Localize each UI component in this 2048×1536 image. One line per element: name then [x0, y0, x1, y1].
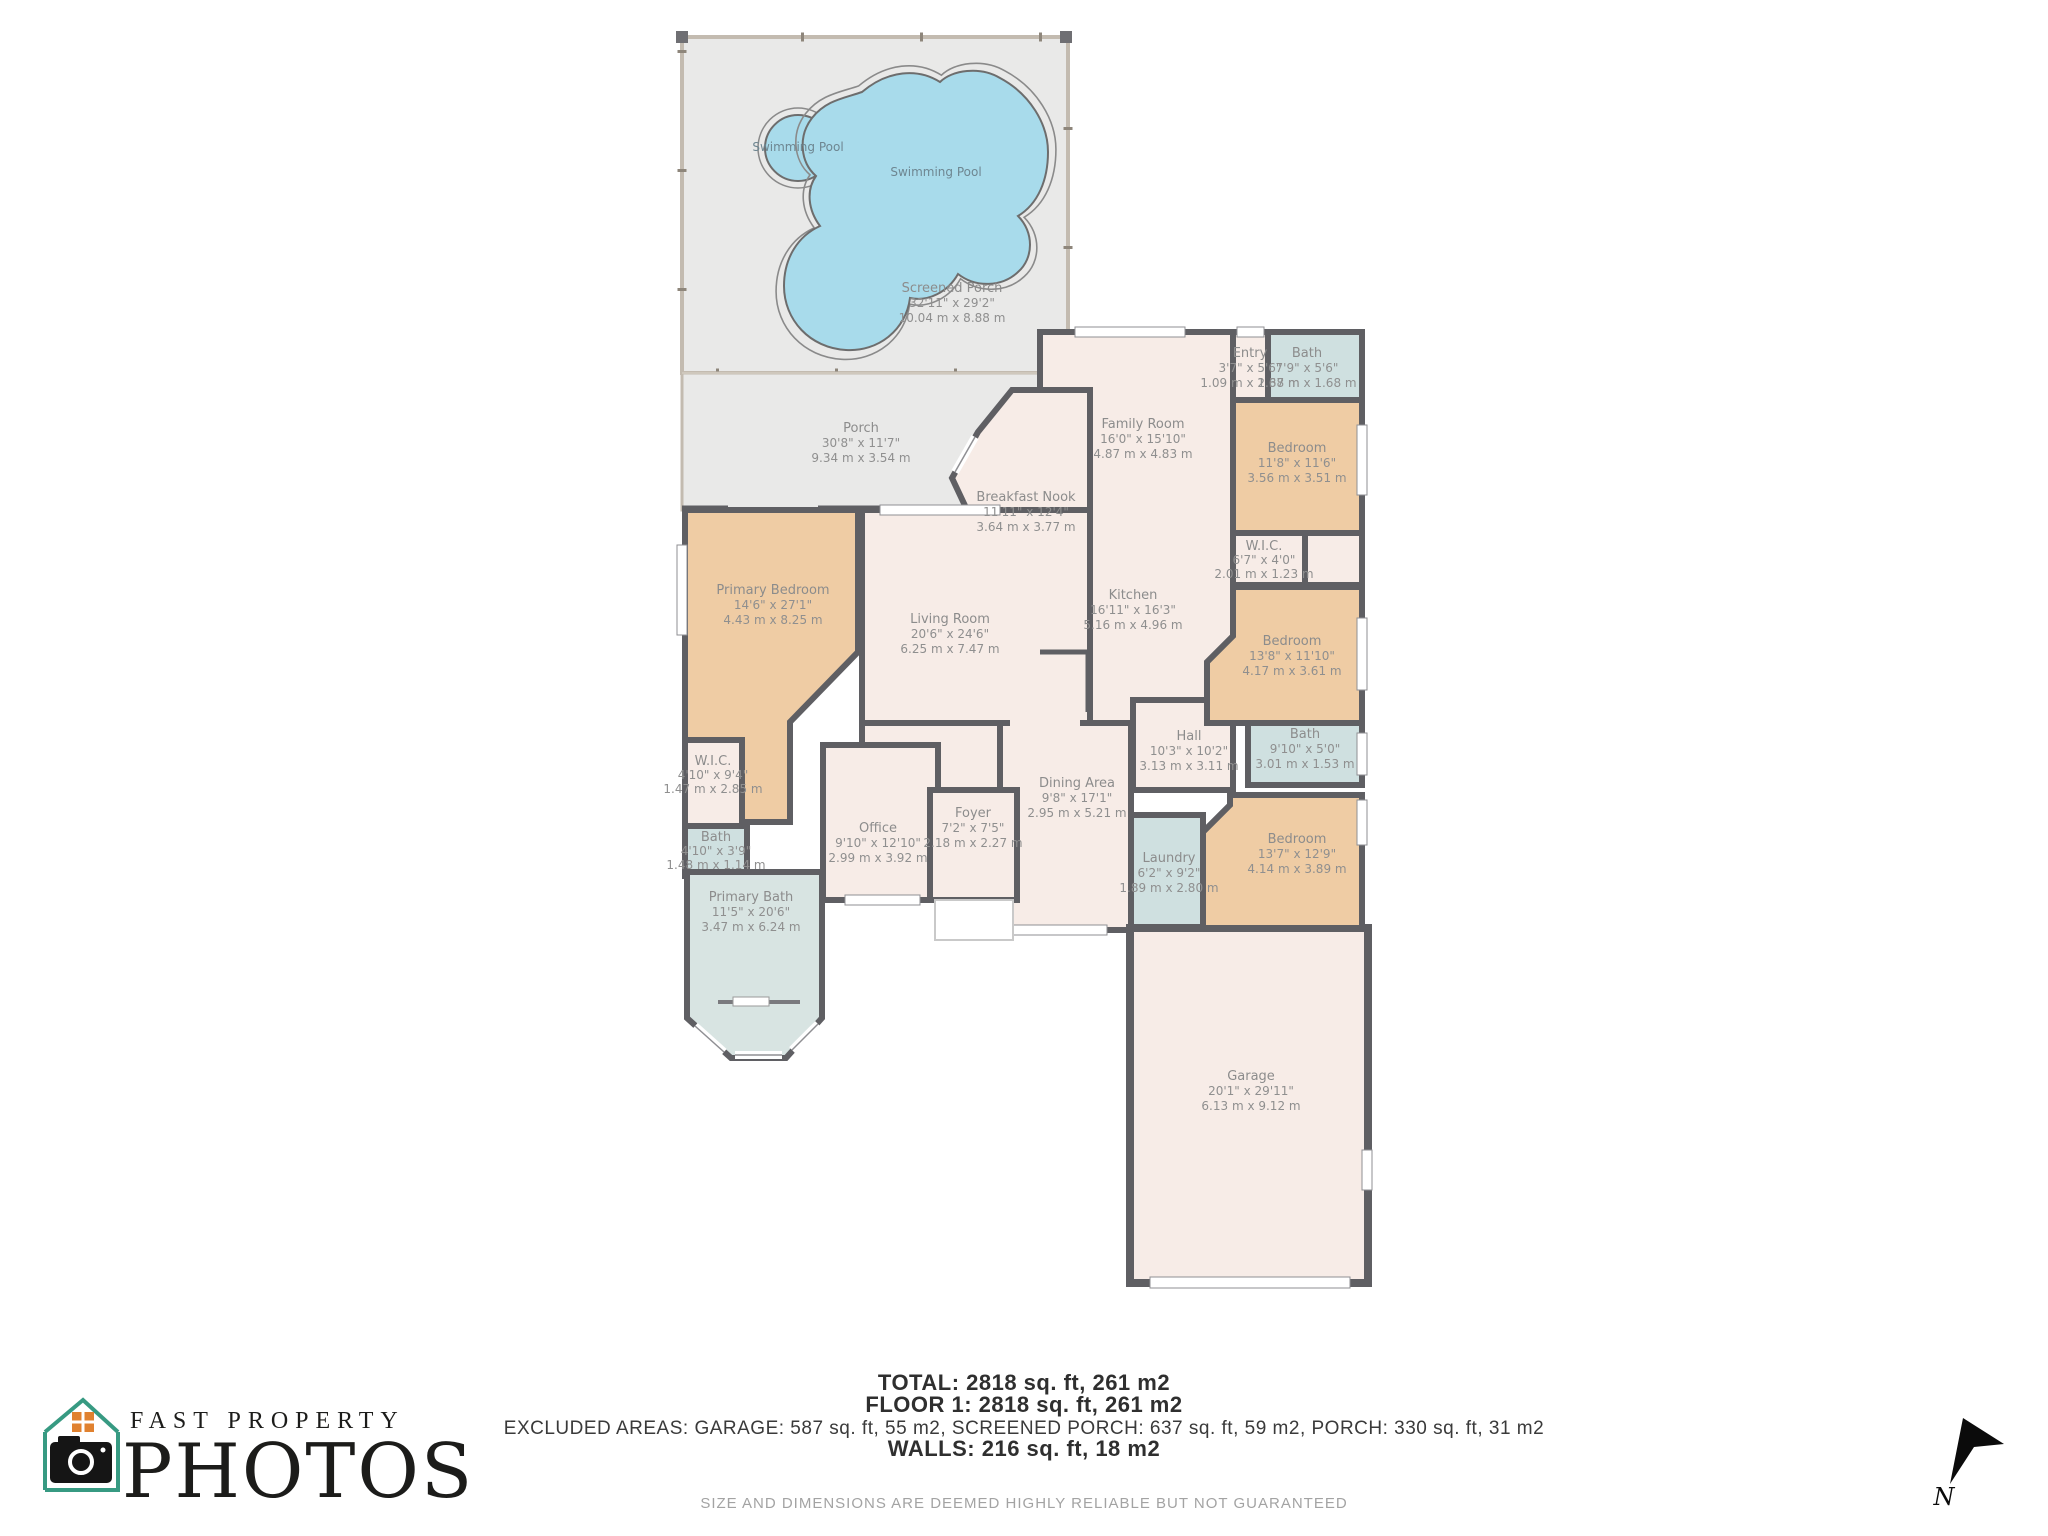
- room-dims-ft: 7'2" x 7'5": [942, 821, 1005, 835]
- room-name: Bath: [701, 830, 731, 845]
- walls-area-text: WALLS: 216 sq. ft, 18 m2: [888, 1436, 1160, 1461]
- room-dims-ft: 7'9" x 5'6": [1276, 361, 1339, 375]
- north-label: N: [1933, 1483, 1956, 1511]
- disclaimer-text: SIZE AND DIMENSIONS ARE DEEMED HIGHLY RE…: [700, 1495, 1347, 1512]
- room-dims-m: 1.48 m x 1.14 m: [666, 858, 765, 872]
- bedroom-ne-window: [1357, 425, 1367, 495]
- room-dims-ft: 11'11" x 12'4": [983, 505, 1069, 519]
- dining-window: [1012, 925, 1107, 935]
- room-dims-m: 4.17 m x 3.61 m: [1242, 664, 1341, 678]
- room-name: Bedroom: [1268, 441, 1327, 456]
- room-label-bath-left: Bath 4'10" x 3'9" 1.48 m x 1.14 m: [666, 830, 765, 872]
- room-dims-m: 2.99 m x 3.92 m: [828, 851, 927, 865]
- room-dims-m: 3.64 m x 3.77 m: [976, 520, 1075, 534]
- room-dims-ft: 11'5" x 20'6": [712, 905, 790, 919]
- room-dims-ft: 30'8" x 11'7": [822, 436, 900, 450]
- front-walk: [935, 900, 1013, 940]
- room-name: Bedroom: [1263, 634, 1322, 649]
- room-dims-m: 3.13 m x 3.11 m: [1139, 759, 1238, 773]
- room-name: W.I.C.: [695, 754, 732, 769]
- primary-bedroom-window: [677, 545, 687, 635]
- room-label-living-room: Living Room 20'6" x 24'6" 6.25 m x 7.47 …: [900, 612, 999, 656]
- bedroom-se-window: [1357, 800, 1367, 845]
- floor-area-text: FLOOR 1: 2818 sq. ft, 261 m2: [865, 1392, 1182, 1417]
- room-name: Breakfast Nook: [976, 490, 1076, 505]
- room-name: Bath: [1290, 727, 1320, 742]
- living-porch-slider: [880, 505, 1000, 515]
- room-dims-ft: 16'0" x 15'10": [1100, 432, 1186, 446]
- room-dims-m: 4.43 m x 8.25 m: [723, 613, 822, 627]
- room-name: Office: [859, 821, 897, 836]
- room-dims-ft: 14'6" x 27'1": [734, 598, 812, 612]
- room-name: Garage: [1227, 1069, 1275, 1084]
- room-dims-ft: 13'7" x 12'9": [1258, 847, 1336, 861]
- room-dims-ft: 9'10" x 5'0": [1270, 742, 1341, 756]
- room-dims-m: 2.37 m x 1.68 m: [1257, 376, 1356, 390]
- room-dims-ft: 6'7" x 4'0": [1233, 553, 1296, 567]
- room-dims-ft: 20'1" x 29'11": [1208, 1084, 1294, 1098]
- room-dims-m: 3.56 m x 3.51 m: [1247, 471, 1346, 485]
- room-label-primary-bath: Primary Bath 11'5" x 20'6" 3.47 m x 6.24…: [701, 890, 800, 934]
- room-dims-m: 3.01 m x 1.53 m: [1255, 757, 1354, 771]
- brand-line2: PHOTOS: [122, 1427, 474, 1515]
- room-dims-m: 4.14 m x 3.89 m: [1247, 862, 1346, 876]
- room-dims-m: 5.16 m x 4.96 m: [1083, 618, 1182, 632]
- room-dims-m: 3.47 m x 6.24 m: [701, 920, 800, 934]
- footer-totals: TOTAL: 2818 sq. ft, 261 m2 FLOOR 1: 2818…: [504, 1370, 1544, 1512]
- room-name: Dining Area: [1039, 776, 1115, 791]
- room-dims-ft: 11'8" x 11'6": [1258, 456, 1336, 470]
- living-dining-opening: [1010, 719, 1080, 727]
- room-name: Bath: [1292, 346, 1322, 361]
- room-dims-m: 4.87 m x 4.83 m: [1093, 447, 1192, 461]
- house-camera-icon: [45, 1400, 120, 1490]
- room-dims-m: 10.04 m x 8.88 m: [899, 311, 1006, 325]
- room-dims-m: 2.01 m x 1.23 m: [1214, 567, 1313, 581]
- room-dims-ft: 32'11" x 29'2": [909, 296, 995, 310]
- room-name: Kitchen: [1109, 588, 1158, 603]
- brand-logo: FAST PROPERTY PHOTOS: [45, 1400, 474, 1515]
- room-name: Hall: [1177, 729, 1202, 744]
- porch-post: [1060, 31, 1072, 43]
- primary-bath-counter: [733, 997, 769, 1006]
- room-dims-ft: 20'6" x 24'6": [911, 627, 989, 641]
- room-name: Family Room: [1102, 417, 1185, 432]
- room-label-breakfast-nook: Breakfast Nook 11'11" x 12'4" 3.64 m x 3…: [976, 490, 1076, 534]
- room-name: Swimming Pool: [752, 140, 843, 154]
- room-dims-m: 1.47 m x 2.85 m: [663, 782, 762, 796]
- room-dims-m: 9.34 m x 3.54 m: [811, 451, 910, 465]
- room-name: Living Room: [910, 612, 990, 627]
- room-name: Swimming Pool: [890, 165, 981, 179]
- room-dims-m: 1.89 m x 2.80 m: [1119, 881, 1218, 895]
- kitchen-living-opening: [1037, 545, 1044, 625]
- room-label-family-room: Family Room 16'0" x 15'10" 4.87 m x 4.83…: [1093, 417, 1192, 461]
- room-name: Primary Bedroom: [716, 583, 829, 598]
- room-dims-ft: 9'10" x 12'10": [835, 836, 921, 850]
- compass: N: [1933, 1418, 2005, 1511]
- room-dims-ft: 16'11" x 16'3": [1090, 603, 1176, 617]
- office-window: [845, 895, 920, 905]
- room-dims-ft: 6'2" x 9'2": [1138, 866, 1201, 880]
- room-name: Bedroom: [1268, 832, 1327, 847]
- floor-plan-canvas: Swimming Pool Swimming Pool Screened Por…: [0, 0, 2048, 1536]
- room-dims-m: 2.18 m x 2.27 m: [923, 836, 1022, 850]
- room-dims-m: 6.13 m x 9.12 m: [1201, 1099, 1300, 1113]
- north-arrow-icon: [1950, 1418, 2004, 1484]
- room-dims-ft: 4'10" x 3'9": [681, 844, 752, 858]
- room-dims-ft: 10'3" x 10'2": [1150, 744, 1228, 758]
- bath-e-window: [1357, 733, 1367, 775]
- room-name: Screened Porch: [902, 281, 1003, 296]
- room-dims-ft: 4'10" x 9'4": [678, 768, 749, 782]
- camera-flash-dot: [101, 1448, 106, 1453]
- room-dims-m: 6.25 m x 7.47 m: [900, 642, 999, 656]
- porch-post: [676, 31, 688, 43]
- garage-door: [1150, 1277, 1350, 1288]
- floor-plan-page: Swimming Pool Swimming Pool Screened Por…: [0, 0, 2048, 1536]
- room-name: Foyer: [955, 806, 992, 821]
- family-room-window: [1075, 327, 1185, 337]
- room-dims-m: 2.95 m x 5.21 m: [1027, 806, 1126, 820]
- garage-side-door: [1362, 1150, 1372, 1190]
- room-name: Entry: [1233, 346, 1268, 361]
- room-name: Porch: [843, 421, 879, 436]
- bedroom-e-window: [1357, 618, 1367, 690]
- entry-door: [1237, 327, 1264, 337]
- room-name: Primary Bath: [709, 890, 794, 905]
- room-name: Laundry: [1143, 851, 1196, 866]
- room-dims-ft: 9'8" x 17'1": [1042, 791, 1113, 805]
- room-label-dining-area: Dining Area 9'8" x 17'1" 2.95 m x 5.21 m: [1027, 776, 1126, 820]
- room-dims-ft: 3'7" x 5'6": [1219, 361, 1282, 375]
- room-name: W.I.C.: [1246, 539, 1283, 554]
- room-dims-ft: 13'8" x 11'10": [1249, 649, 1335, 663]
- room-label-screened-porch: Screened Porch 32'11" x 29'2" 10.04 m x …: [899, 281, 1006, 325]
